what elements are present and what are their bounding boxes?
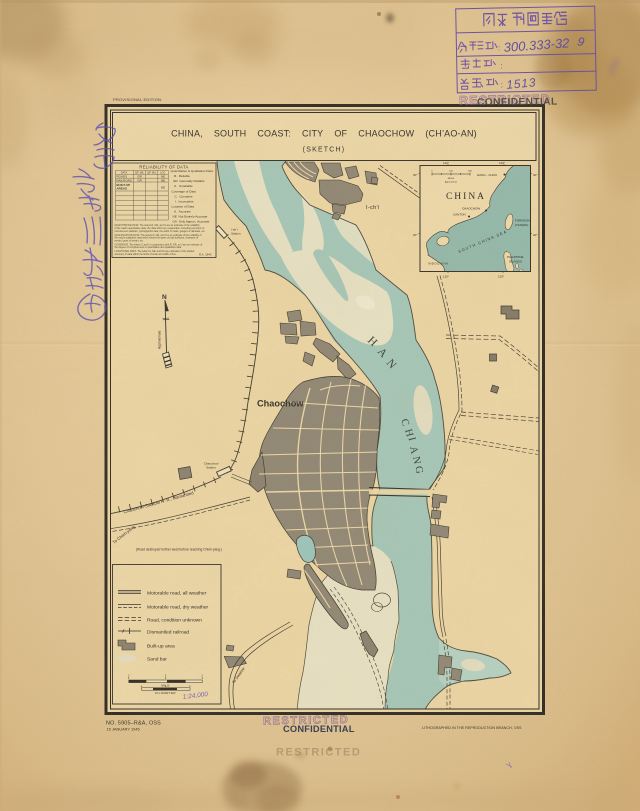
- svg-text:RESTRICTED: RESTRICTED: [276, 747, 361, 759]
- svg-text:1513: 1513: [506, 75, 537, 92]
- svg-text::: :: [498, 43, 500, 52]
- svg-text:CONFIDENTIAL: CONFIDENTIAL: [477, 97, 558, 109]
- svg-text::: :: [501, 80, 503, 89]
- svg-text:CONFIDENTIAL: CONFIDENTIAL: [283, 724, 355, 734]
- svg-text::: :: [500, 61, 502, 70]
